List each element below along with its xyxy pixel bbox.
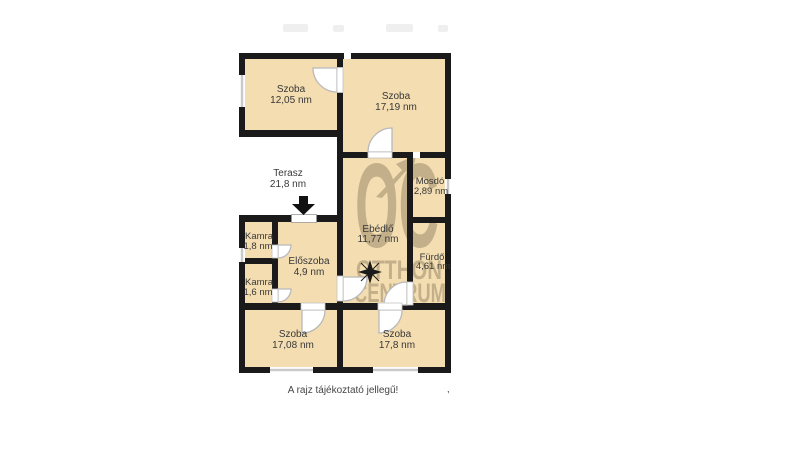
wall-segment (337, 152, 451, 158)
room-name-szoba-12: Szoba (277, 84, 306, 95)
wall-segment (239, 303, 451, 310)
faded-text-fragment (386, 24, 413, 32)
faded-text-fragment (333, 25, 344, 32)
wall-gap (344, 53, 351, 59)
floor-plan: OC OTTHON CENTRUM (0, 0, 800, 450)
room-area-kamra-1: 1,8 nm (243, 241, 272, 252)
room-name-szoba-br: Szoba (383, 329, 412, 340)
room-name-eloszoba: Előszoba (288, 256, 330, 267)
room-area-szoba-br: 17,8 nm (379, 340, 415, 351)
door-opening (407, 282, 413, 305)
window-line (241, 75, 243, 107)
door-opening (301, 303, 325, 310)
faded-header-fragments (283, 24, 448, 32)
room-area-szoba-bl: 17,08 nm (272, 340, 314, 351)
faded-text-fragment (438, 25, 448, 32)
north-star-icon (358, 260, 382, 284)
door-opening (337, 276, 343, 301)
door-opening (337, 68, 343, 93)
door-opening (368, 152, 392, 158)
room-area-ebedlo: 11,77 nm (358, 234, 399, 245)
room-name-szoba-bl: Szoba (279, 329, 308, 340)
window-line (373, 369, 418, 371)
wall-segment (445, 53, 451, 373)
room-area-mosdo: 2,89 nm (414, 186, 448, 197)
room-name-szoba-17: Szoba (382, 91, 411, 102)
room-area-szoba-17: 17,19 nm (375, 102, 417, 113)
wall-segment (239, 130, 343, 137)
wall-gap (413, 152, 420, 158)
room-area-eloszoba: 4,9 nm (294, 267, 325, 278)
entrance-door (292, 215, 317, 223)
stray-mark: , (447, 384, 450, 394)
disclaimer-note: A rajz tájékoztató jellegű! (288, 385, 399, 396)
room-area-furdo: 4,61 nm (416, 261, 450, 272)
wall-segment (407, 217, 451, 223)
faded-text-fragment (283, 24, 308, 32)
wall-segment (337, 303, 343, 373)
room-name-terasz: Terasz (273, 168, 302, 179)
room-area-szoba-12: 12,05 nm (270, 95, 312, 106)
door-opening (378, 303, 402, 310)
door-opening (272, 289, 278, 302)
wall-segment (239, 215, 343, 222)
entrance-arrow-icon (292, 196, 315, 215)
door-opening (272, 245, 278, 258)
room-area-kamra-2: 1,6 nm (243, 287, 272, 298)
window-line (270, 369, 313, 371)
room-area-terasz: 21,8 nm (270, 179, 306, 190)
